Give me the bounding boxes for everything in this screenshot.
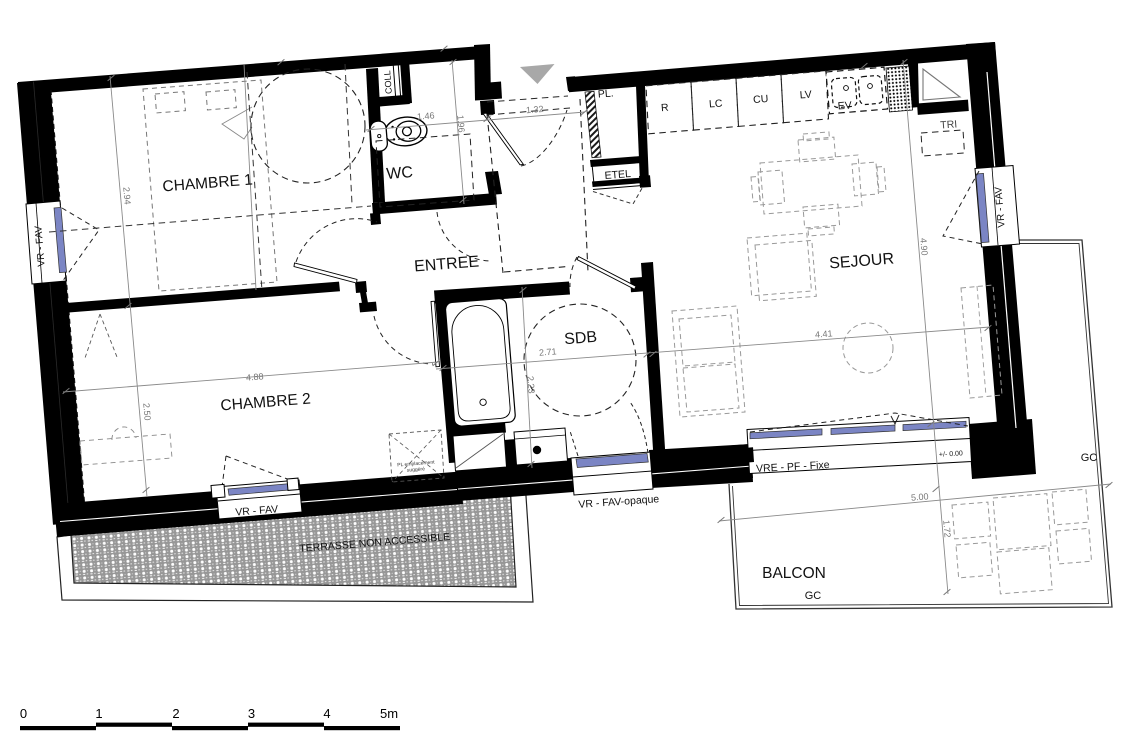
svg-text:1.96: 1.96 <box>455 115 466 133</box>
svg-text:LC: LC <box>709 97 724 110</box>
svg-text:5.00: 5.00 <box>911 491 929 502</box>
svg-text:2.23: 2.23 <box>525 376 536 394</box>
svg-text:BALCON: BALCON <box>762 565 826 582</box>
svg-text:TRI: TRI <box>940 118 958 131</box>
svg-text:5m: 5m <box>380 706 398 721</box>
svg-text:1.46: 1.46 <box>417 110 435 121</box>
svg-text:3: 3 <box>248 706 255 721</box>
svg-text:2.94: 2.94 <box>121 187 132 205</box>
svg-text:1.32: 1.32 <box>526 104 544 115</box>
svg-text:COLL: COLL <box>382 70 394 94</box>
svg-text:GC: GC <box>1081 452 1098 464</box>
svg-text:R: R <box>661 102 670 115</box>
svg-text:2: 2 <box>172 706 179 721</box>
svg-text:PL.: PL. <box>597 87 614 100</box>
svg-text:4.90: 4.90 <box>918 238 929 256</box>
svg-text:CU: CU <box>753 93 769 106</box>
svg-text:EV: EV <box>837 99 852 112</box>
svg-text:1.72: 1.72 <box>941 520 952 538</box>
svg-text:4.41: 4.41 <box>815 328 833 339</box>
svg-text:WC: WC <box>386 164 414 183</box>
svg-text:0: 0 <box>20 706 27 721</box>
svg-text:LV: LV <box>799 89 812 102</box>
svg-text:SDB: SDB <box>564 329 598 349</box>
svg-text:2.50: 2.50 <box>141 403 152 421</box>
svg-text:+/- 0.00: +/- 0.00 <box>939 450 963 458</box>
svg-text:1: 1 <box>95 706 102 721</box>
svg-text:4: 4 <box>323 706 330 721</box>
svg-text:4.88: 4.88 <box>246 371 264 382</box>
svg-text:2.71: 2.71 <box>539 346 557 357</box>
svg-text:ETEL: ETEL <box>604 168 631 182</box>
svg-text:GC: GC <box>805 590 822 602</box>
